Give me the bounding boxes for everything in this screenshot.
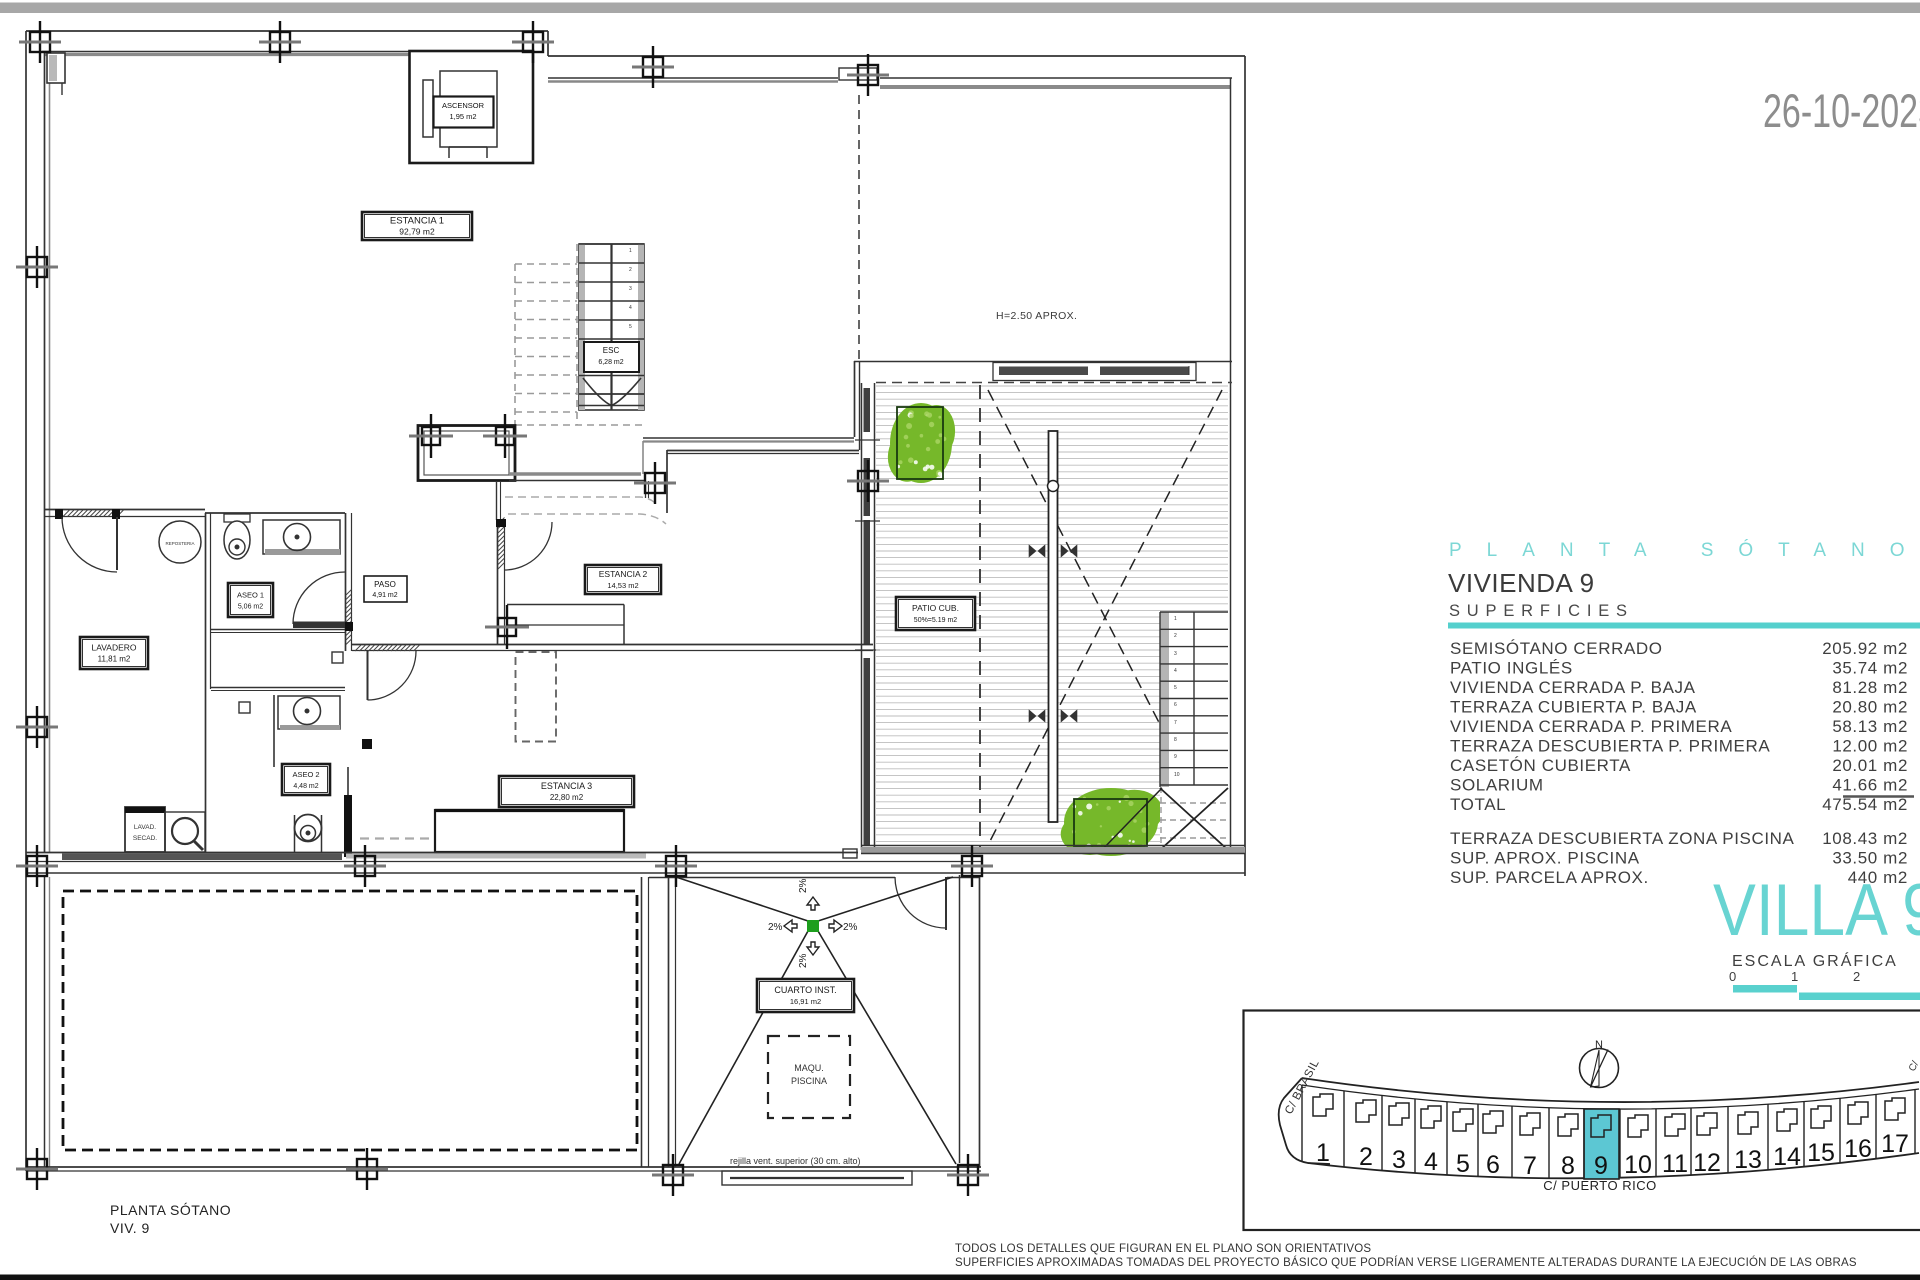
svg-text:ASEO 2: ASEO 2 [292,770,319,779]
svg-text:ASEO 1: ASEO 1 [237,591,264,600]
svg-text:3: 3 [1392,1146,1406,1174]
svg-text:22,80 m2: 22,80 m2 [550,793,584,802]
svg-text:1: 1 [1791,969,1798,984]
svg-text:PATIO INGLÉS: PATIO INGLÉS [1450,659,1573,678]
svg-text:7: 7 [1174,720,1177,726]
svg-text:PASO: PASO [374,580,396,589]
svg-text:TODOS LOS DETALLES QUE FIGURAN: TODOS LOS DETALLES QUE FIGURAN EN EL PLA… [955,1243,1371,1255]
svg-text:5: 5 [1456,1150,1470,1178]
svg-text:5: 5 [629,324,632,330]
svg-text:C/ PUERTO RICO: C/ PUERTO RICO [1543,1178,1656,1193]
svg-text:10: 10 [1624,1151,1652,1179]
svg-text:rejilla vent. superior (30 cm.: rejilla vent. superior (30 cm. alto) [730,1156,861,1166]
svg-text:1,95 m2: 1,95 m2 [449,112,476,121]
svg-text:5: 5 [1174,685,1177,691]
svg-text:1: 1 [1316,1139,1330,1167]
svg-text:VIV. 9: VIV. 9 [110,1220,150,1236]
svg-text:VIVIENDA 9: VIVIENDA 9 [1448,568,1595,598]
svg-text:TERRAZA CUBIERTA P. BAJA: TERRAZA CUBIERTA P. BAJA [1450,698,1697,717]
svg-text:1: 1 [629,248,632,254]
svg-text:92,79 m2: 92,79 m2 [399,227,435,237]
svg-text:PATIO CUB.: PATIO CUB. [912,603,959,613]
svg-text:SUP. APROX. PISCINA: SUP. APROX. PISCINA [1450,849,1640,868]
svg-text:LAVAD.: LAVAD. [134,824,156,831]
svg-text:6: 6 [1174,702,1177,708]
svg-text:9: 9 [1174,754,1177,760]
svg-text:9: 9 [1594,1152,1608,1180]
svg-text:14,53 m2: 14,53 m2 [607,581,638,590]
svg-text:TERRAZA DESCUBIERTA ZONA PISC: TERRAZA DESCUBIERTA ZONA PISCINA [1450,829,1795,848]
svg-text:4: 4 [1174,668,1177,674]
svg-text:ESTANCIA 2: ESTANCIA 2 [599,569,648,579]
svg-text:4,48 m2: 4,48 m2 [293,783,318,790]
svg-text:3: 3 [1174,651,1177,657]
svg-text:ESTANCIA 3: ESTANCIA 3 [541,781,592,791]
svg-text:10: 10 [1174,772,1180,778]
svg-text:4: 4 [1424,1148,1438,1176]
svg-text:8: 8 [1561,1152,1575,1180]
svg-text:REPOSTERIA: REPOSTERIA [165,541,194,546]
svg-text:7: 7 [1523,1152,1537,1180]
svg-text:11,81 m2: 11,81 m2 [98,655,131,664]
svg-text:17: 17 [1881,1130,1909,1158]
svg-text:SEMISÓTANO CERRADO: SEMISÓTANO CERRADO [1450,639,1663,658]
svg-text:41.66 m2: 41.66 m2 [1832,776,1908,795]
svg-text:6: 6 [1486,1151,1500,1179]
svg-text:3: 3 [629,286,632,292]
svg-text:4,91 m2: 4,91 m2 [372,592,397,599]
svg-text:2%: 2% [768,922,783,933]
svg-text:26-10-2023: 26-10-2023 [1763,84,1920,137]
svg-text:14: 14 [1773,1143,1801,1171]
svg-text:SUP. PARCELA APROX.: SUP. PARCELA APROX. [1450,868,1649,887]
svg-text:H=2.50 APROX.: H=2.50 APROX. [996,310,1077,322]
svg-text:58.13 m2: 58.13 m2 [1832,717,1908,736]
svg-text:ESTANCIA 1: ESTANCIA 1 [390,216,444,227]
svg-text:ESC: ESC [603,346,620,355]
svg-text:LAVADERO: LAVADERO [91,643,136,653]
svg-text:2: 2 [1853,969,1860,984]
svg-text:5,06 m2: 5,06 m2 [238,604,263,611]
svg-text:2%: 2% [798,953,809,968]
svg-text:SECAD.: SECAD. [133,835,157,842]
svg-text:1: 1 [1174,616,1177,622]
svg-text:35.74 m2: 35.74 m2 [1832,659,1908,678]
svg-text:PLANTA SÓTANO: PLANTA SÓTANO [110,1202,231,1218]
svg-text:12: 12 [1693,1149,1721,1177]
svg-text:MAQU.: MAQU. [794,1063,824,1073]
svg-text:ESCALA GRÁFICA: ESCALA GRÁFICA [1732,951,1898,970]
svg-text:20.01 m2: 20.01 m2 [1832,756,1908,775]
svg-text:CUARTO INST.: CUARTO INST. [774,985,836,995]
svg-text:TERRAZA DESCUBIERTA P. PRIMERA: TERRAZA DESCUBIERTA P. PRIMERA [1450,737,1770,756]
svg-text:2%: 2% [843,922,858,933]
svg-text:VILLA 9: VILLA 9 [1713,870,1920,951]
svg-text:50%=5.19 m2: 50%=5.19 m2 [914,617,957,624]
svg-text:205.92 m2: 205.92 m2 [1822,639,1908,658]
svg-text:16,91 m2: 16,91 m2 [790,997,821,1006]
svg-text:6,28 m2: 6,28 m2 [598,359,623,366]
svg-text:2: 2 [1359,1143,1373,1171]
svg-text:2: 2 [629,267,632,273]
svg-text:VIVIENDA CERRADA P. BAJA: VIVIENDA CERRADA P. BAJA [1450,678,1696,697]
svg-text:SOLARIUM: SOLARIUM [1450,776,1544,795]
svg-text:8: 8 [1174,737,1177,743]
svg-text:ASCENSOR: ASCENSOR [442,101,485,110]
svg-text:108.43 m2: 108.43 m2 [1822,829,1908,848]
svg-text:15: 15 [1807,1139,1835,1167]
svg-text:4: 4 [629,305,632,311]
svg-text:VIVIENDA CERRADA P. PRIMERA: VIVIENDA CERRADA P. PRIMERA [1450,717,1732,736]
svg-text:CASETÓN CUBIERTA: CASETÓN CUBIERTA [1450,756,1631,775]
svg-text:81.28 m2: 81.28 m2 [1832,678,1908,697]
svg-text:0: 0 [1729,969,1736,984]
svg-text:13: 13 [1734,1146,1762,1174]
svg-text:PISCINA: PISCINA [791,1076,827,1086]
svg-text:2: 2 [1174,633,1177,639]
svg-text:16: 16 [1844,1135,1872,1163]
svg-text:475.54 m2: 475.54 m2 [1822,795,1908,814]
svg-text:SUPERFICIES APROXIMADAS TOMADA: SUPERFICIES APROXIMADAS TOMADAS DEL PROY… [955,1256,1857,1269]
svg-text:PLANTA SÓTANO: PLANTA SÓTANO [1449,539,1920,561]
svg-text:N: N [1595,1039,1603,1051]
svg-text:2%: 2% [798,878,809,893]
svg-text:11: 11 [1662,1150,1688,1178]
svg-text:SUPERFICIES: SUPERFICIES [1449,602,1634,620]
svg-text:33.50 m2: 33.50 m2 [1832,849,1908,868]
svg-text:20.80 m2: 20.80 m2 [1832,698,1908,717]
svg-text:12.00 m2: 12.00 m2 [1832,737,1908,756]
svg-text:TOTAL: TOTAL [1450,795,1506,814]
